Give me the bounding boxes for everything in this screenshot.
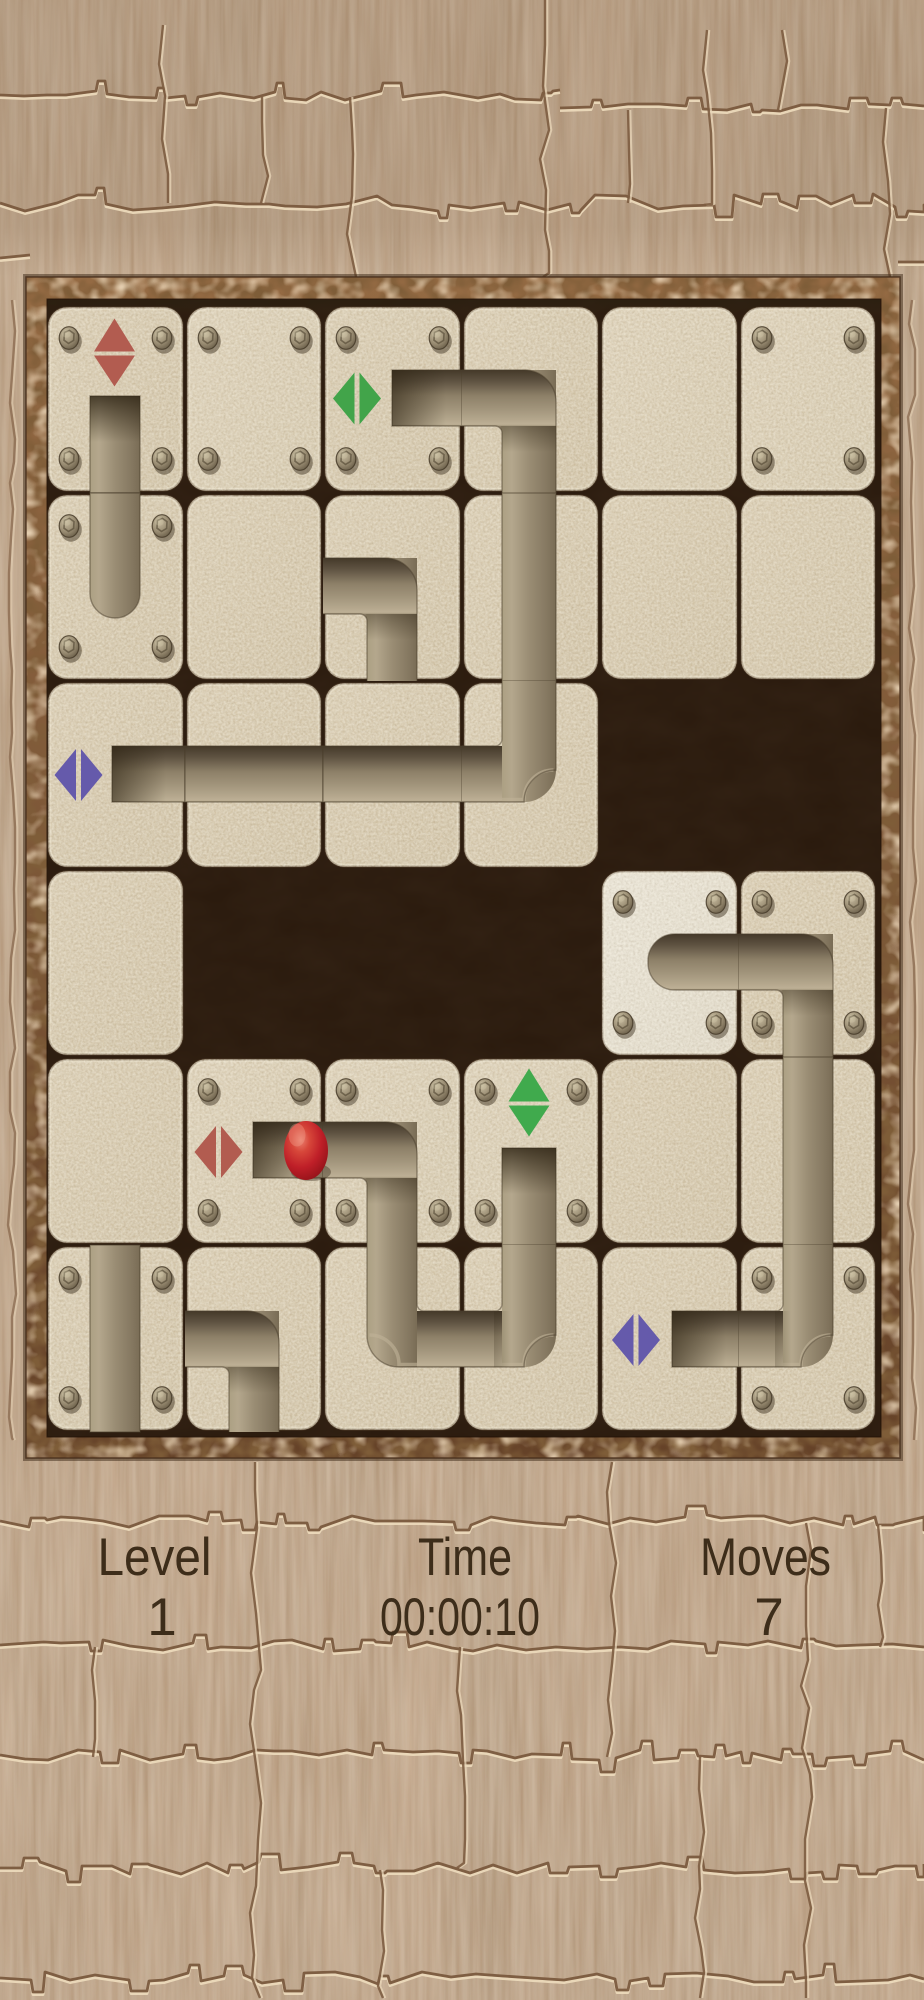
svg-text:Time: Time bbox=[418, 1528, 512, 1587]
svg-text:00:00:10: 00:00:10 bbox=[380, 1588, 540, 1647]
svg-text:Level: Level bbox=[98, 1528, 212, 1587]
svg-text:1: 1 bbox=[147, 1588, 176, 1647]
svg-text:7: 7 bbox=[754, 1588, 783, 1647]
svg-text:Moves: Moves bbox=[700, 1528, 831, 1587]
